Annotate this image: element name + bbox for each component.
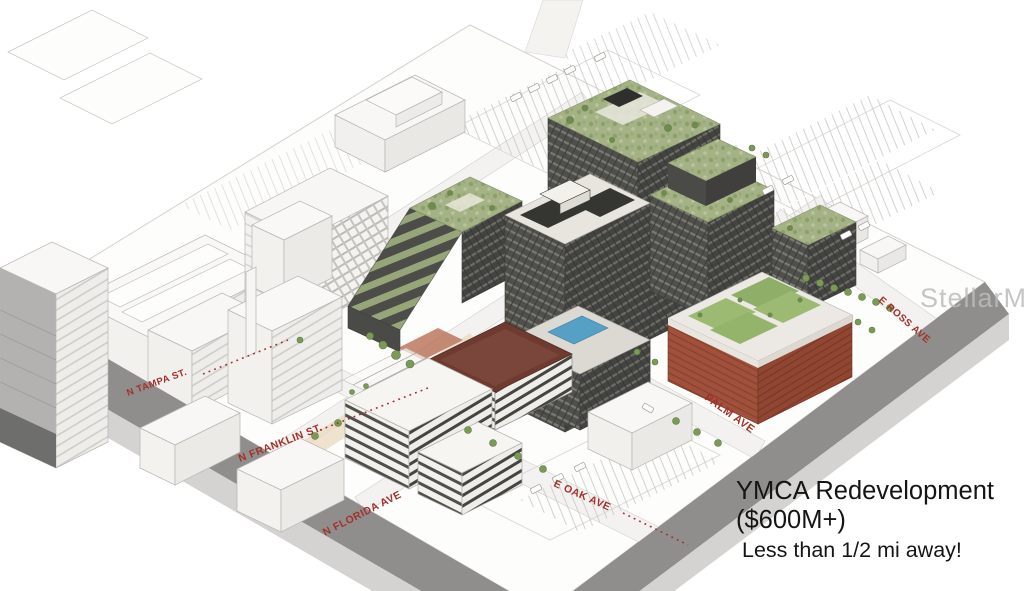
far-left-tower [0,242,108,468]
stellar-mls-watermark: StellarMLS [920,283,1024,313]
caption: YMCA Redevelopment ($600M+) Less than 1/… [736,477,994,562]
site-rendering: N TAMPA ST. N FRANKLIN ST. N FLORIDA AVE… [0,0,1024,591]
chimney [246,267,256,357]
listing-photo-ymca-redevelopment: N TAMPA ST. N FRANKLIN ST. N FLORIDA AVE… [0,0,1024,591]
caption-subtitle: Less than 1/2 mi away! [742,538,962,562]
caption-title-line2: ($600M+) [736,506,846,534]
caption-title-line1: YMCA Redevelopment [736,477,994,505]
